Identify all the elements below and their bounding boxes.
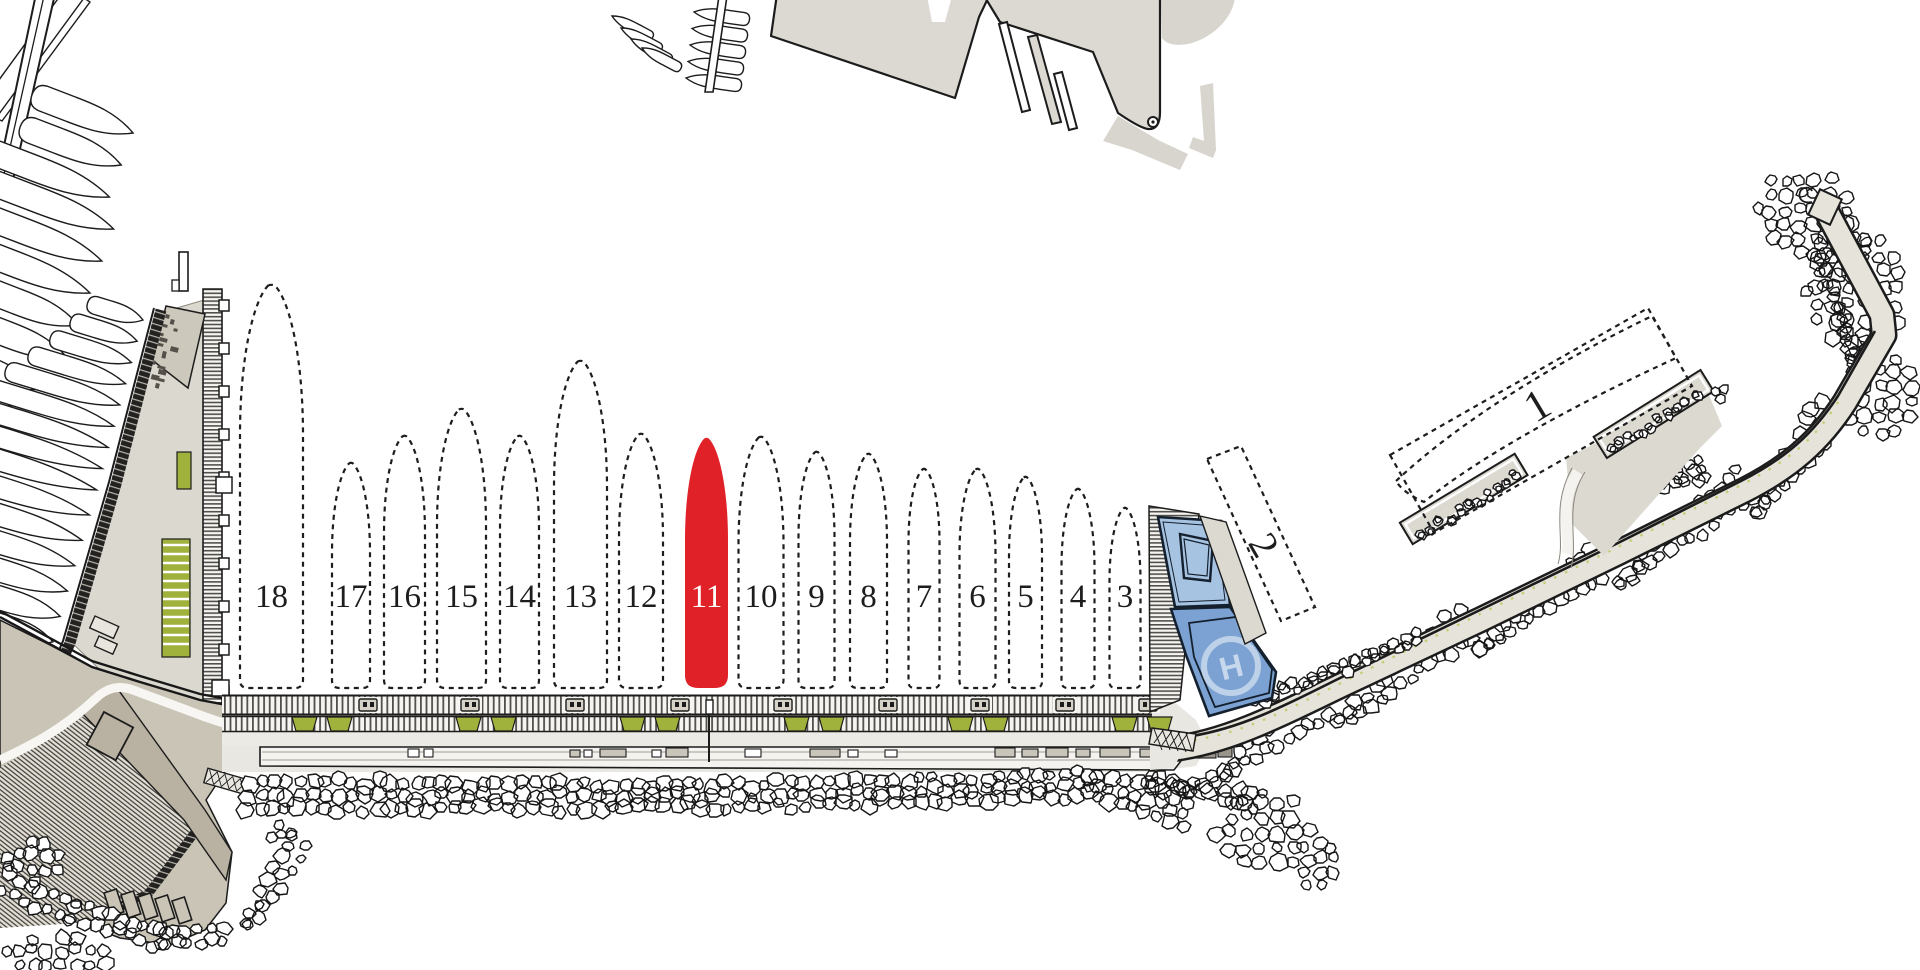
svg-text:1: 1 xyxy=(1515,379,1559,432)
svg-text:14: 14 xyxy=(503,579,536,615)
svg-text:16: 16 xyxy=(388,579,421,615)
svg-text:8: 8 xyxy=(860,579,877,615)
svg-text:15: 15 xyxy=(445,579,478,615)
svg-text:3: 3 xyxy=(1117,579,1134,615)
svg-text:10: 10 xyxy=(745,579,778,615)
svg-text:13: 13 xyxy=(564,579,597,615)
svg-text:9: 9 xyxy=(808,579,825,615)
svg-text:11: 11 xyxy=(691,579,723,615)
svg-text:2: 2 xyxy=(1240,525,1289,565)
svg-text:4: 4 xyxy=(1070,579,1087,615)
svg-text:6: 6 xyxy=(969,579,986,615)
svg-text:5: 5 xyxy=(1017,579,1034,615)
svg-text:18: 18 xyxy=(255,579,288,615)
svg-text:7: 7 xyxy=(916,579,933,615)
svg-text:17: 17 xyxy=(335,579,368,615)
svg-text:12: 12 xyxy=(625,579,658,615)
